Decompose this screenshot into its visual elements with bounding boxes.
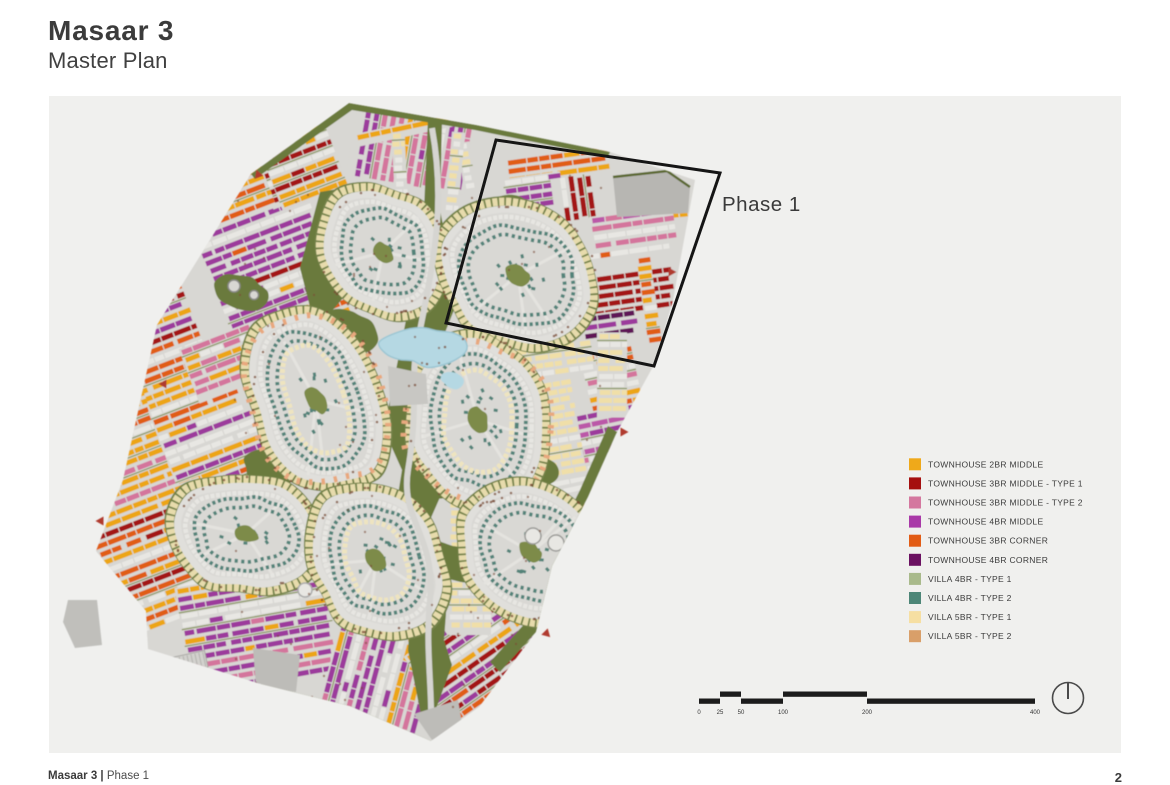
svg-text:25: 25 bbox=[717, 710, 724, 716]
svg-text:TOWNHOUSE 3BR MIDDLE - TYPE 2: TOWNHOUSE 3BR MIDDLE - TYPE 2 bbox=[928, 498, 1083, 508]
svg-text:VILLA 4BR - TYPE 2: VILLA 4BR - TYPE 2 bbox=[928, 593, 1012, 603]
svg-text:TOWNHOUSE 4BR MIDDLE: TOWNHOUSE 4BR MIDDLE bbox=[928, 517, 1043, 527]
svg-text:0: 0 bbox=[697, 710, 701, 716]
svg-text:100: 100 bbox=[778, 710, 789, 716]
svg-text:VILLA 4BR - TYPE 1: VILLA 4BR - TYPE 1 bbox=[928, 574, 1012, 584]
svg-text:200: 200 bbox=[862, 710, 873, 716]
svg-text:TOWNHOUSE 3BR MIDDLE - TYPE 1: TOWNHOUSE 3BR MIDDLE - TYPE 1 bbox=[928, 478, 1083, 488]
svg-text:TOWNHOUSE 4BR CORNER: TOWNHOUSE 4BR CORNER bbox=[928, 555, 1048, 565]
svg-text:VILLA 5BR - TYPE 2: VILLA 5BR - TYPE 2 bbox=[928, 631, 1012, 641]
svg-text:VILLA 5BR - TYPE 1: VILLA 5BR - TYPE 1 bbox=[928, 612, 1012, 622]
svg-text:400: 400 bbox=[1030, 710, 1041, 716]
svg-text:TOWNHOUSE 2BR MIDDLE: TOWNHOUSE 2BR MIDDLE bbox=[928, 459, 1043, 469]
svg-text:TOWNHOUSE 3BR CORNER: TOWNHOUSE 3BR CORNER bbox=[928, 536, 1048, 546]
svg-text:50: 50 bbox=[738, 710, 745, 716]
svg-text:Phase 1: Phase 1 bbox=[722, 193, 801, 216]
